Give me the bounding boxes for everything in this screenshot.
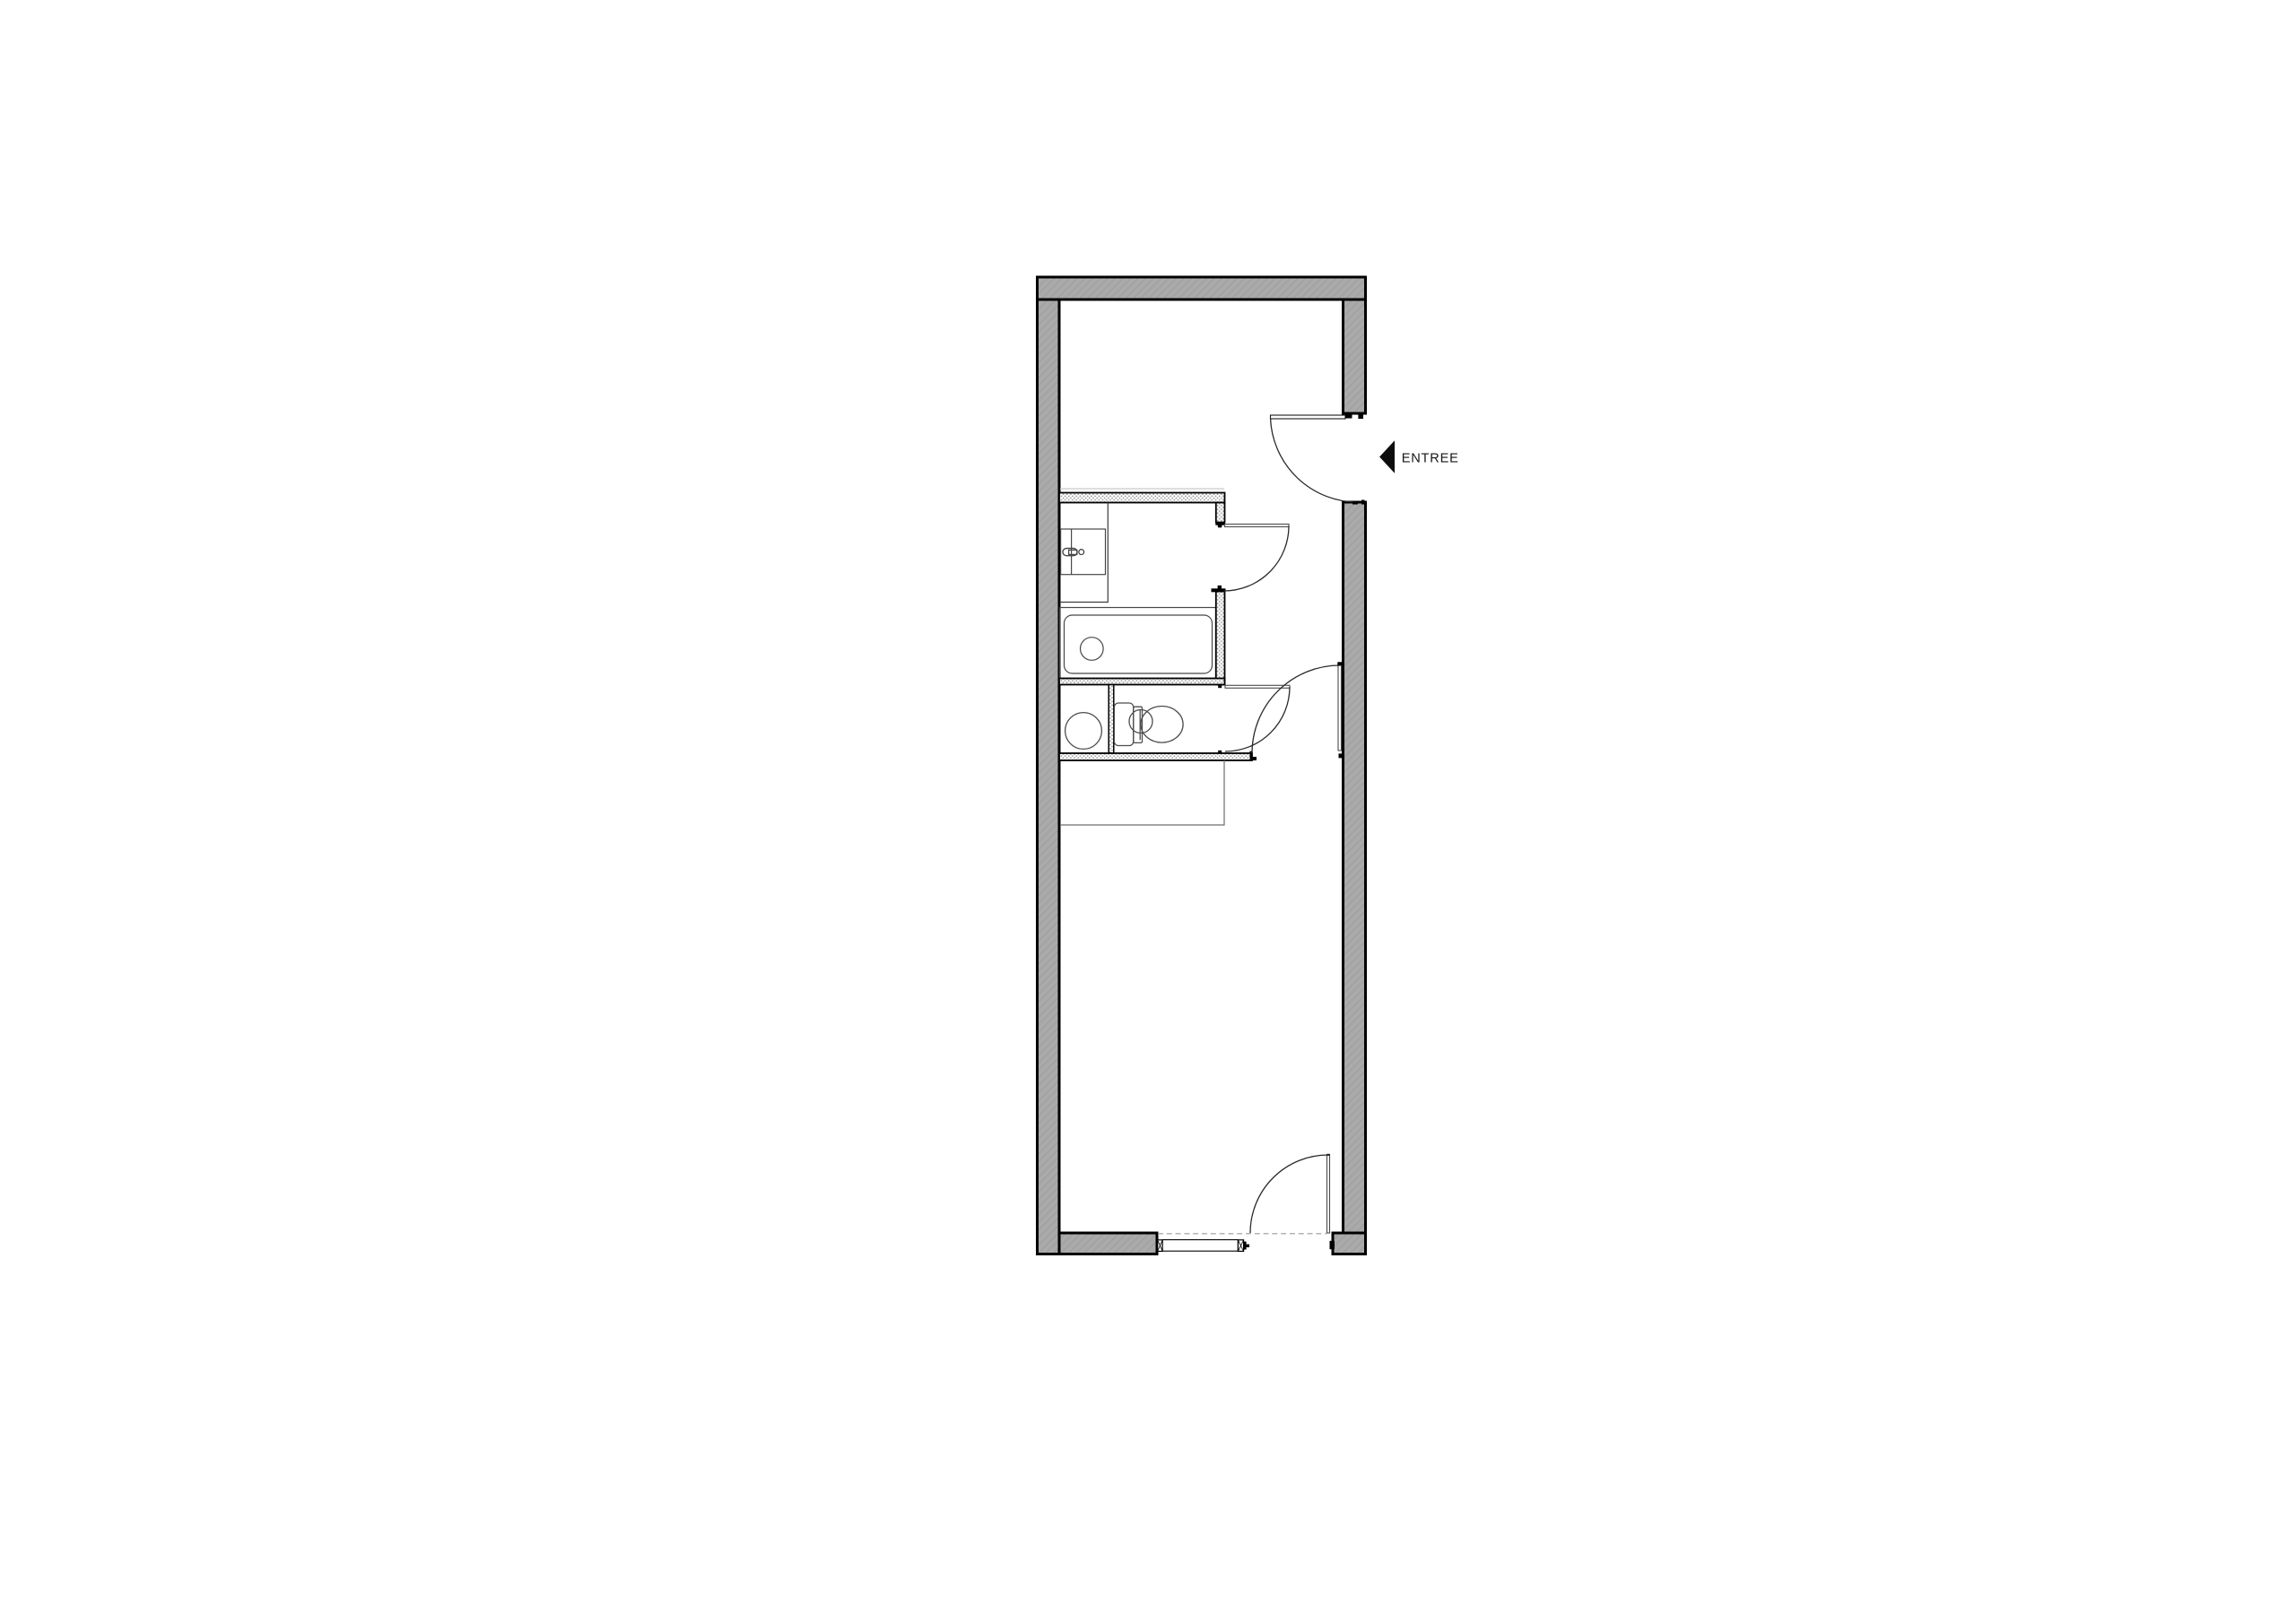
svg-text:ENTREE: ENTREE [1402,452,1459,466]
